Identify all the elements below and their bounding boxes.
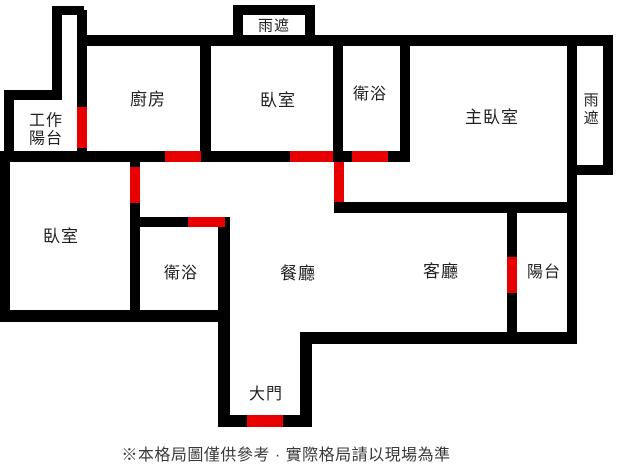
labels-layer: 工作陽台廚房臥室衛浴主臥室雨遮雨遮臥室衛浴餐廳客廳陽台大門 [0, 0, 640, 473]
room-label-rain-canopy-right: 雨遮 [581, 92, 598, 128]
footer-disclaimer: ※本格局圖僅供參考 · 實際格局請以現場為準 [121, 441, 450, 465]
room-label-bathroom-left: 衛浴 [164, 265, 198, 283]
room-label-work-balcony: 工作陽台 [28, 113, 63, 150]
room-label-bathroom-top: 衛浴 [353, 86, 387, 104]
room-label-balcony: 陽台 [527, 264, 561, 282]
room-label-living-room: 客廳 [423, 262, 459, 282]
room-label-dining-room: 餐廳 [280, 264, 316, 284]
room-label-bedroom-left: 臥室 [43, 227, 79, 247]
room-label-bedroom-top: 臥室 [260, 91, 296, 111]
room-label-rain-canopy-top: 雨遮 [258, 17, 290, 34]
room-label-master-bedroom: 主臥室 [465, 108, 519, 128]
room-label-main-door: 大門 [249, 386, 283, 404]
floor-plan: 工作陽台廚房臥室衛浴主臥室雨遮雨遮臥室衛浴餐廳客廳陽台大門 ※本格局圖僅供參考 … [0, 0, 640, 473]
room-label-kitchen: 廚房 [130, 90, 166, 110]
